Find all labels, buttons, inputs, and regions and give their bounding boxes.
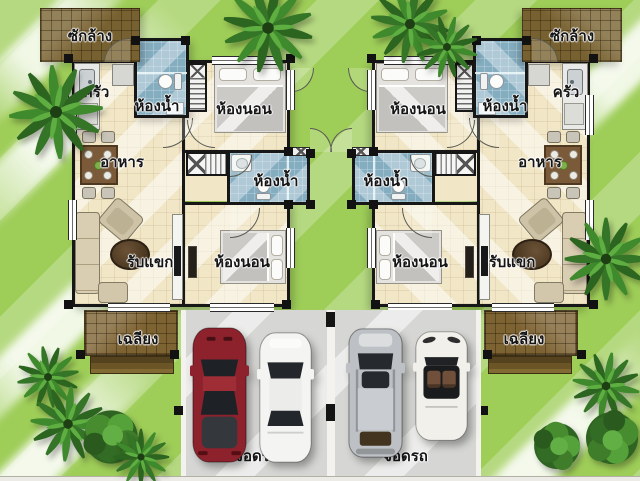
dining-chair <box>566 131 580 143</box>
room-label-bedroom2: ห้องนอน <box>205 250 279 274</box>
toilet <box>478 72 504 92</box>
room-label-porch: เฉลียง <box>486 327 562 351</box>
window <box>108 303 170 312</box>
room-label-bathroom1: ห้องน้ำ <box>116 94 198 118</box>
room-label-bedroom1: ห้องนอน <box>205 97 283 121</box>
white-convertible-car <box>413 330 470 444</box>
room-label-bathroom1: ห้องน้ำ <box>464 94 546 118</box>
dining-chair <box>547 187 561 199</box>
pillow <box>253 68 281 81</box>
wardrobe-cabinet <box>186 152 228 176</box>
room-label-bathroom2: ห้องน้ำ <box>346 169 426 193</box>
room-label-dining: อาหาร <box>87 150 157 174</box>
dining-chair <box>101 131 115 143</box>
porch-steps <box>488 356 572 374</box>
room-label-bedroom1: ห้องนอน <box>379 97 457 121</box>
window <box>384 56 450 65</box>
room-label-laundry: ซักล้าง <box>532 24 612 48</box>
toilet <box>158 72 184 92</box>
silver-suv-car <box>346 327 405 459</box>
pillow <box>415 68 443 81</box>
window-sill-hatch <box>292 147 310 156</box>
tv-cabinet <box>188 246 197 278</box>
room-label-kitchen: ครัว <box>540 80 592 104</box>
room-label-laundry: ซักล้าง <box>50 24 130 48</box>
structural-posts <box>64 54 73 63</box>
wardrobe-cabinet <box>434 152 476 176</box>
room-label-living: รับแขก <box>476 250 548 274</box>
window <box>367 70 376 110</box>
window-sill-hatch <box>352 147 370 156</box>
dining-chair <box>566 187 580 199</box>
sofa <box>75 212 100 294</box>
carport-divider-post <box>326 312 335 327</box>
bottom-edge-strip <box>0 476 640 481</box>
room-label-bedroom2: ห้องนอน <box>383 250 457 274</box>
white-sedan-car <box>257 331 314 464</box>
porch-steps <box>90 356 174 374</box>
door-arc <box>330 128 352 152</box>
dining-chair <box>547 131 561 143</box>
sofa <box>562 212 587 294</box>
window <box>492 303 554 312</box>
pillow <box>381 68 409 81</box>
carport-divider-post <box>326 404 335 421</box>
window <box>210 303 274 312</box>
window <box>212 56 278 65</box>
dining-chair <box>82 131 96 143</box>
window <box>286 228 295 268</box>
room-label-living: รับแขก <box>114 250 186 274</box>
window <box>585 200 594 240</box>
red-sedan-car <box>190 326 249 464</box>
dining-chair <box>82 187 96 199</box>
room-label-kitchen: ครัว <box>70 80 122 104</box>
sofa-section <box>534 282 564 303</box>
window <box>367 228 376 268</box>
dining-chair <box>101 187 115 199</box>
room-label-bathroom2: ห้องน้ำ <box>236 169 316 193</box>
structural-posts <box>589 54 598 63</box>
pillow <box>219 68 247 81</box>
floor-plan-stage: ซักล้าง ครัว ห้องน้ำ ห้องนอน อาหาร ห้องน… <box>0 0 640 481</box>
room-label-porch: เฉลียง <box>100 327 176 351</box>
sofa-section <box>98 282 128 303</box>
window <box>68 200 77 240</box>
room-label-dining: อาหาร <box>505 150 575 174</box>
window <box>286 70 295 110</box>
tv-cabinet <box>465 246 474 278</box>
